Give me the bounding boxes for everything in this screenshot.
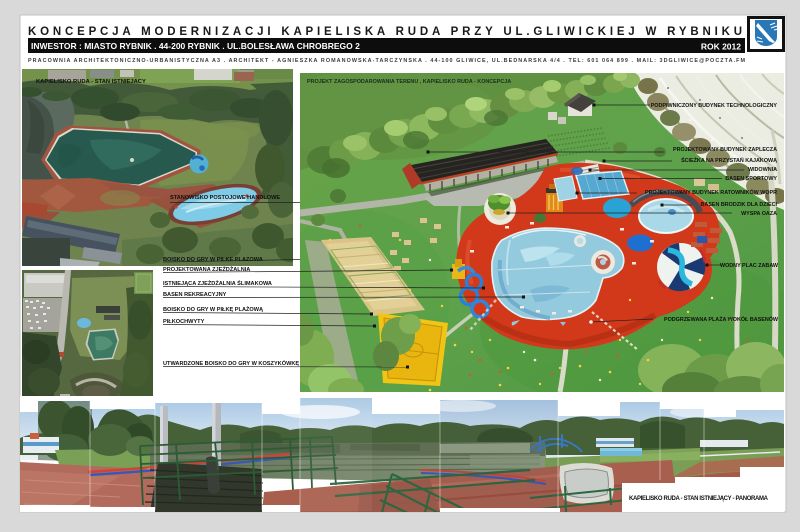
svg-text:STANOWISKO POSTOJOWE HANDLOWE: STANOWISKO POSTOJOWE HANDLOWE — [170, 195, 280, 201]
svg-text:WODNY PLAC ZABAW: WODNY PLAC ZABAW — [720, 263, 779, 269]
svg-text:PROJEKTOWANY BUDYNEK ZAPLECZA: PROJEKTOWANY BUDYNEK ZAPLECZA — [673, 147, 777, 153]
svg-text:PROJEKT ZAGOSPODAROWANIA TERE: PROJEKT ZAGOSPODAROWANIA TERENU , KAPIEL… — [307, 79, 511, 85]
svg-text:WIDOWNIA: WIDOWNIA — [748, 167, 777, 173]
svg-text:BASEN SPORTOWY: BASEN SPORTOWY — [725, 176, 777, 182]
svg-text:PROJEKTOWANA ZJEŻDŻALNIA: PROJEKTOWANA ZJEŻDŻALNIA — [163, 266, 250, 273]
svg-text:ROK 2012: ROK 2012 — [701, 42, 741, 52]
svg-text:PIŁKOCHWYTY: PIŁKOCHWYTY — [163, 319, 205, 325]
svg-text:PRACOWNIA ARCHITEKTONICZNO-UR: PRACOWNIA ARCHITEKTONICZNO-URBANISTYCZNA… — [28, 58, 745, 64]
svg-text:PODGRZEWANA PLAŻA WOKÓŁ BASENÓ: PODGRZEWANA PLAŻA WOKÓŁ BASENÓW — [664, 315, 779, 323]
svg-text:BOISKO DO GRY W PIŁKĘ PLAŻOWĄ: BOISKO DO GRY W PIŁKĘ PLAŻOWĄ — [163, 306, 263, 313]
svg-text:PODPIWNICZONY BUDYNEK TECHNOLO: PODPIWNICZONY BUDYNEK TECHNOLOGICZNY — [651, 103, 778, 109]
svg-text:BOISKO DO GRY W PILKE PLAZOWA: BOISKO DO GRY W PILKE PLAZOWA — [163, 257, 263, 263]
svg-text:WYSPA OAZA: WYSPA OAZA — [741, 211, 777, 217]
svg-text:BASEN BRODZIK DLA DZIECI: BASEN BRODZIK DLA DZIECI — [701, 202, 778, 208]
svg-text:INWESTOR : MIASTO RYBNIK . 44-: INWESTOR : MIASTO RYBNIK . 44-200 RYBNIK… — [31, 41, 360, 51]
svg-text:KONCEPCJA MODERNIZACJI KAPIEL: KONCEPCJA MODERNIZACJI KAPIELISKA RUDA P… — [28, 26, 744, 38]
svg-text:UTWARDZONE BOISKO DO GRY W KOS: UTWARDZONE BOISKO DO GRY W KOSZYKÓWKĘ — [163, 359, 299, 367]
svg-text:ŚCIEŻKA NA PRZYSTAŃ KAJAKOWĄ: ŚCIEŻKA NA PRZYSTAŃ KAJAKOWĄ — [681, 156, 777, 164]
svg-text:KAPIELISKO RUDA - STAN ISTNIE: KAPIELISKO RUDA - STAN ISTNIEJACY — [36, 79, 146, 85]
svg-text:PROJEKTOWANY BUDYNEK RATOWNIKÓ: PROJEKTOWANY BUDYNEK RATOWNIKÓW WOPR — [645, 188, 777, 196]
svg-text:KAPIELISKO RUDA - STAN ISTNIE: KAPIELISKO RUDA - STAN ISTNIEJĄCY - PANO… — [629, 496, 769, 502]
svg-text:BASEN REKREACYJNY: BASEN REKREACYJNY — [163, 292, 227, 298]
svg-text:ISTNIEJĄCA ZJEŻDŻALNIA ŚLIMAKO: ISTNIEJĄCA ZJEŻDŻALNIA ŚLIMAKOWA — [163, 280, 272, 287]
